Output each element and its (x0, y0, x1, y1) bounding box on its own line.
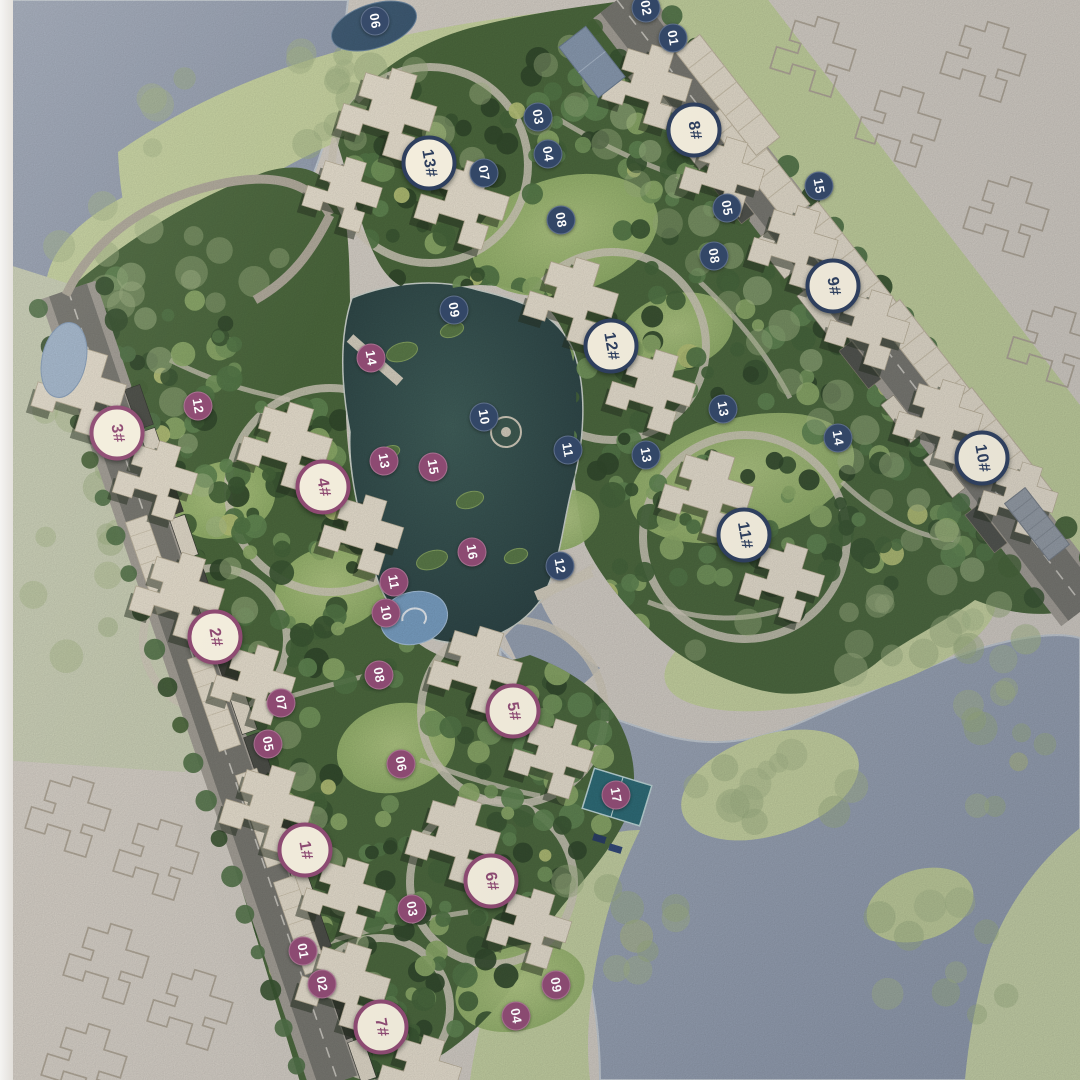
marker-text: 04 (540, 145, 555, 162)
site-marker-west-15: 15 (419, 453, 448, 482)
building-label-east-9#: 9# (806, 259, 861, 314)
building-label-west-7#: 7# (354, 1000, 409, 1055)
building-label-east-8#: 8# (667, 103, 722, 158)
marker-text: 17 (608, 786, 623, 803)
site-marker-east-14: 14 (824, 424, 853, 453)
building-label-east-12#: 12# (584, 319, 639, 374)
marker-text: 05 (719, 199, 734, 216)
marker-text: 11# (734, 520, 754, 550)
marker-text: 5# (503, 700, 522, 721)
marker-text: 1# (295, 839, 314, 860)
photo-page-edge (0, 0, 13, 1080)
building-label-west-6#: 6# (464, 854, 519, 909)
marker-text: 07 (476, 164, 491, 181)
site-marker-west-07: 07 (267, 689, 296, 718)
site-marker-east-15: 15 (805, 172, 834, 201)
marker-text: 16 (464, 543, 479, 560)
site-marker-east-11: 11 (554, 436, 583, 465)
site-marker-east-13: 13 (709, 395, 738, 424)
marker-text: 01 (665, 29, 680, 46)
marker-text: 08 (371, 666, 386, 683)
site-marker-west-06: 06 (387, 750, 416, 779)
site-marker-west-10: 10 (372, 599, 401, 628)
marker-text: 10 (476, 408, 491, 425)
site-marker-east-08: 08 (700, 242, 729, 271)
marker-text: 14 (830, 429, 845, 446)
marker-text: 02 (638, 0, 653, 17)
building-label-east-13#: 13# (402, 136, 457, 191)
marker-text: 13 (638, 446, 653, 463)
site-marker-west-03: 03 (398, 895, 427, 924)
marker-text: 06 (367, 12, 382, 29)
site-marker-west-02: 02 (308, 970, 337, 999)
marker-text: 04 (508, 1007, 523, 1024)
marker-text: 7# (371, 1016, 390, 1037)
marker-text: 9# (823, 275, 842, 296)
site-plan-photo: 0102030405060708091011121314151617010203… (0, 0, 1080, 1080)
site-marker-west-01: 01 (289, 937, 318, 966)
site-marker-east-12: 12 (546, 552, 575, 581)
marker-text: 10 (378, 604, 393, 621)
marker-text: 06 (393, 755, 408, 772)
site-marker-east-04: 04 (534, 140, 563, 169)
marker-text: 09 (548, 976, 563, 993)
marker-text: 4# (313, 476, 332, 497)
marker-text: 13# (419, 148, 440, 179)
building-label-east-10#: 10# (955, 431, 1010, 486)
site-marker-east-10: 10 (470, 403, 499, 432)
marker-text: 03 (530, 108, 545, 125)
site-marker-west-11: 11 (380, 568, 409, 597)
marker-text: 11 (560, 442, 575, 459)
marker-text: 6# (481, 870, 500, 891)
site-marker-west-04: 04 (502, 1002, 531, 1031)
site-marker-west-14: 14 (357, 344, 386, 373)
site-marker-east-01: 01 (659, 24, 688, 53)
site-marker-west-13: 13 (370, 447, 399, 476)
site-marker-east-05: 05 (713, 194, 742, 223)
marker-text: 02 (314, 975, 329, 992)
marker-text: 14 (363, 349, 378, 366)
site-marker-east-07: 07 (470, 159, 499, 188)
site-marker-east-13: 13 (632, 441, 661, 470)
site-marker-east-08: 08 (547, 206, 576, 235)
marker-text: 13 (376, 452, 391, 469)
site-marker-east-06: 06 (361, 7, 390, 36)
site-marker-west-12: 12 (184, 392, 213, 421)
building-label-west-1#: 1# (278, 823, 333, 878)
building-label-east-11#: 11# (717, 508, 772, 563)
marker-text: 13 (715, 400, 730, 417)
site-marker-west-09: 09 (542, 971, 571, 1000)
site-marker-west-16: 16 (458, 538, 487, 567)
building-label-west-2#: 2# (188, 610, 243, 665)
marker-text: 05 (260, 735, 275, 752)
marker-text: 8# (684, 119, 703, 140)
marker-text: 15 (811, 177, 826, 194)
marker-text: 01 (295, 942, 310, 959)
marker-text: 11 (386, 574, 401, 591)
site-marker-west-17: 17 (602, 781, 631, 810)
marker-text: 2# (205, 626, 224, 647)
marker-text: 10# (972, 443, 993, 474)
marker-text: 03 (404, 900, 419, 917)
building-label-west-3#: 3# (90, 406, 145, 461)
marker-text: 12 (552, 557, 567, 574)
marker-text: 08 (553, 211, 568, 228)
site-marker-west-05: 05 (254, 730, 283, 759)
marker-text: 08 (706, 247, 721, 264)
building-label-west-4#: 4# (296, 460, 351, 515)
site-marker-west-08: 08 (365, 661, 394, 690)
marker-text: 12 (190, 397, 205, 414)
marker-text: 12# (601, 331, 622, 362)
site-marker-east-09: 09 (440, 296, 469, 325)
marker-text: 07 (273, 694, 288, 711)
marker-text: 09 (446, 301, 461, 318)
site-marker-east-03: 03 (524, 103, 553, 132)
marker-text: 15 (425, 458, 440, 475)
building-label-west-5#: 5# (486, 684, 541, 739)
marker-text: 3# (107, 422, 126, 443)
